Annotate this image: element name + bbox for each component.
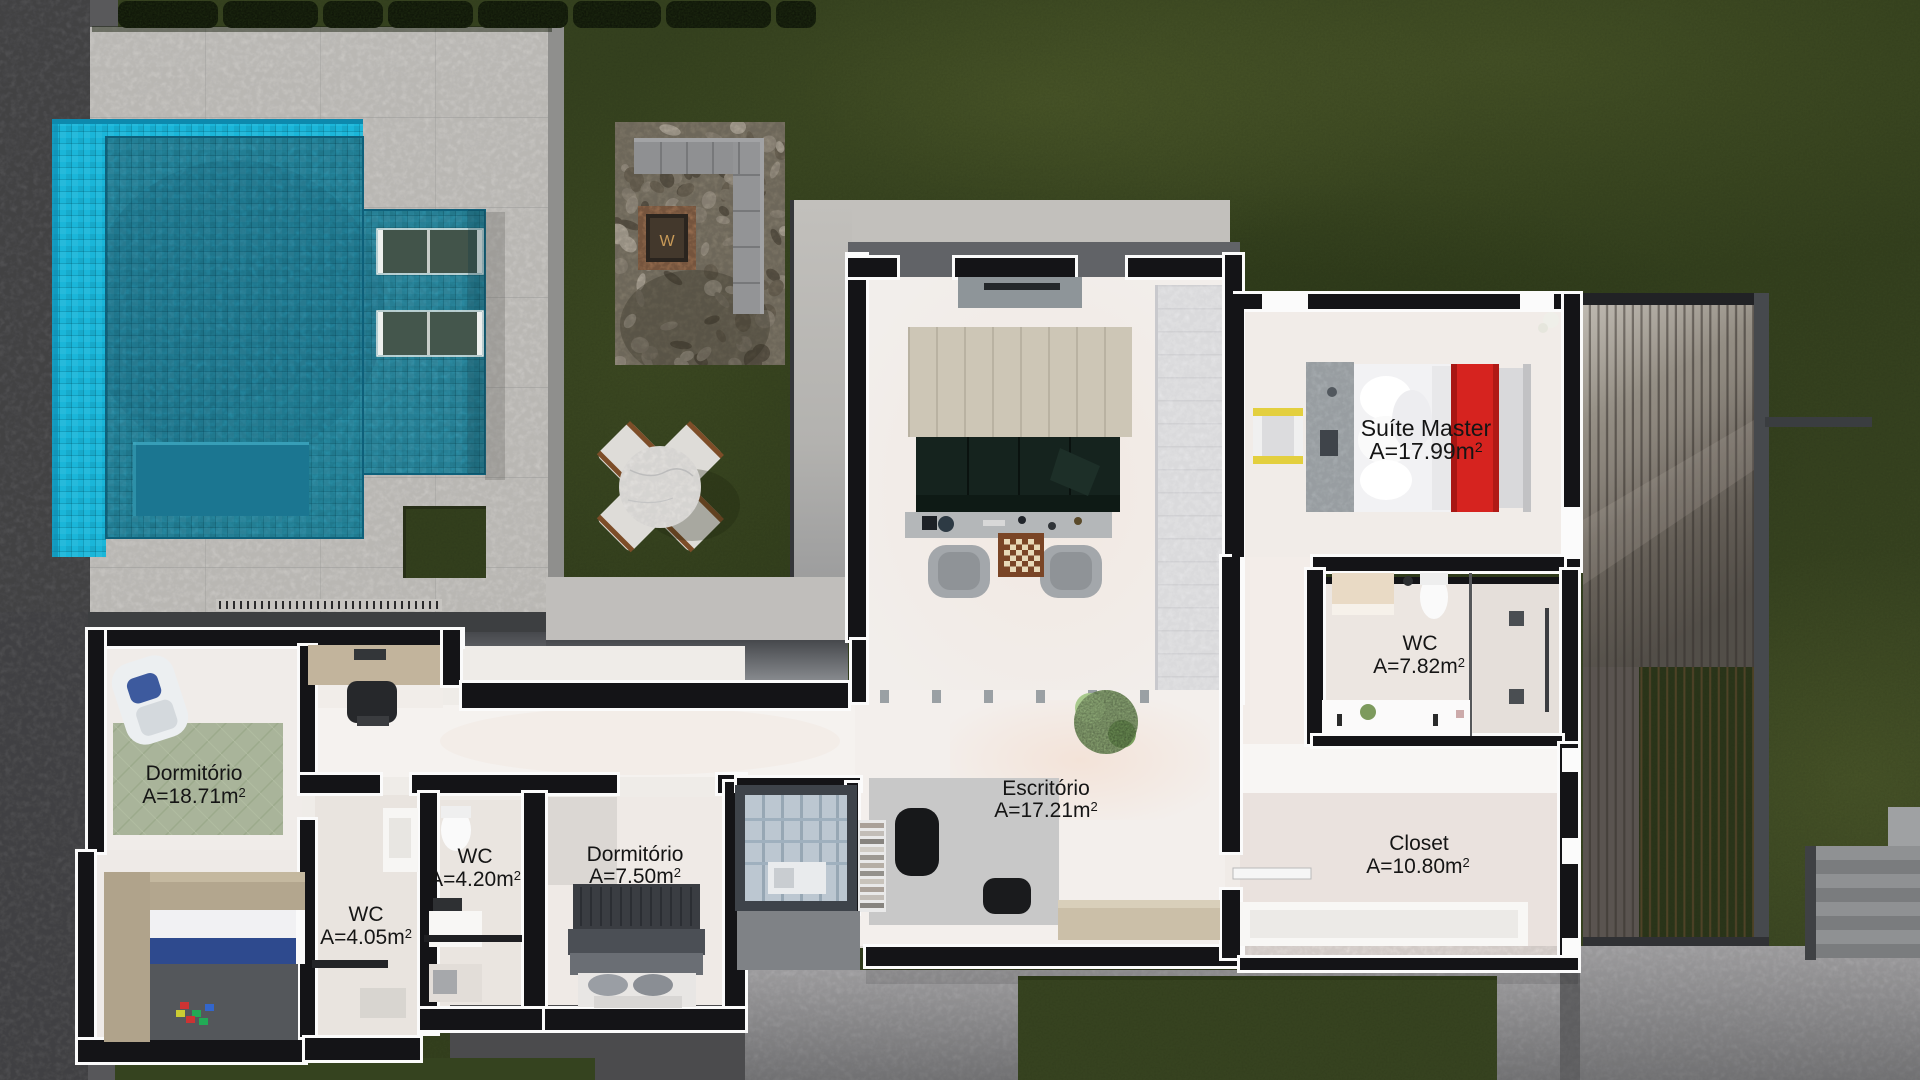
svg-text:A=4.05m2: A=4.05m2 (320, 926, 412, 949)
svg-text:Escritório: Escritório (1002, 777, 1090, 800)
svg-text:WC: WC (458, 845, 493, 868)
svg-text:W: W (659, 233, 675, 250)
svg-text:A=10.80m2: A=10.80m2 (1366, 855, 1470, 878)
svg-text:A=4.20m2: A=4.20m2 (429, 868, 521, 891)
svg-text:A=18.71m2: A=18.71m2 (142, 785, 246, 808)
svg-text:A=7.82m2: A=7.82m2 (1373, 655, 1465, 678)
svg-text:WC: WC (1403, 632, 1438, 655)
svg-text:A=7.50m2: A=7.50m2 (589, 865, 681, 888)
svg-text:A=17.99m2: A=17.99m2 (1369, 438, 1483, 464)
svg-text:Closet: Closet (1389, 832, 1449, 855)
svg-text:Dormitório: Dormitório (146, 762, 243, 785)
svg-text:WC: WC (349, 903, 384, 926)
svg-text:Dormitório: Dormitório (587, 843, 684, 866)
svg-text:A=17.21m2: A=17.21m2 (994, 799, 1098, 822)
